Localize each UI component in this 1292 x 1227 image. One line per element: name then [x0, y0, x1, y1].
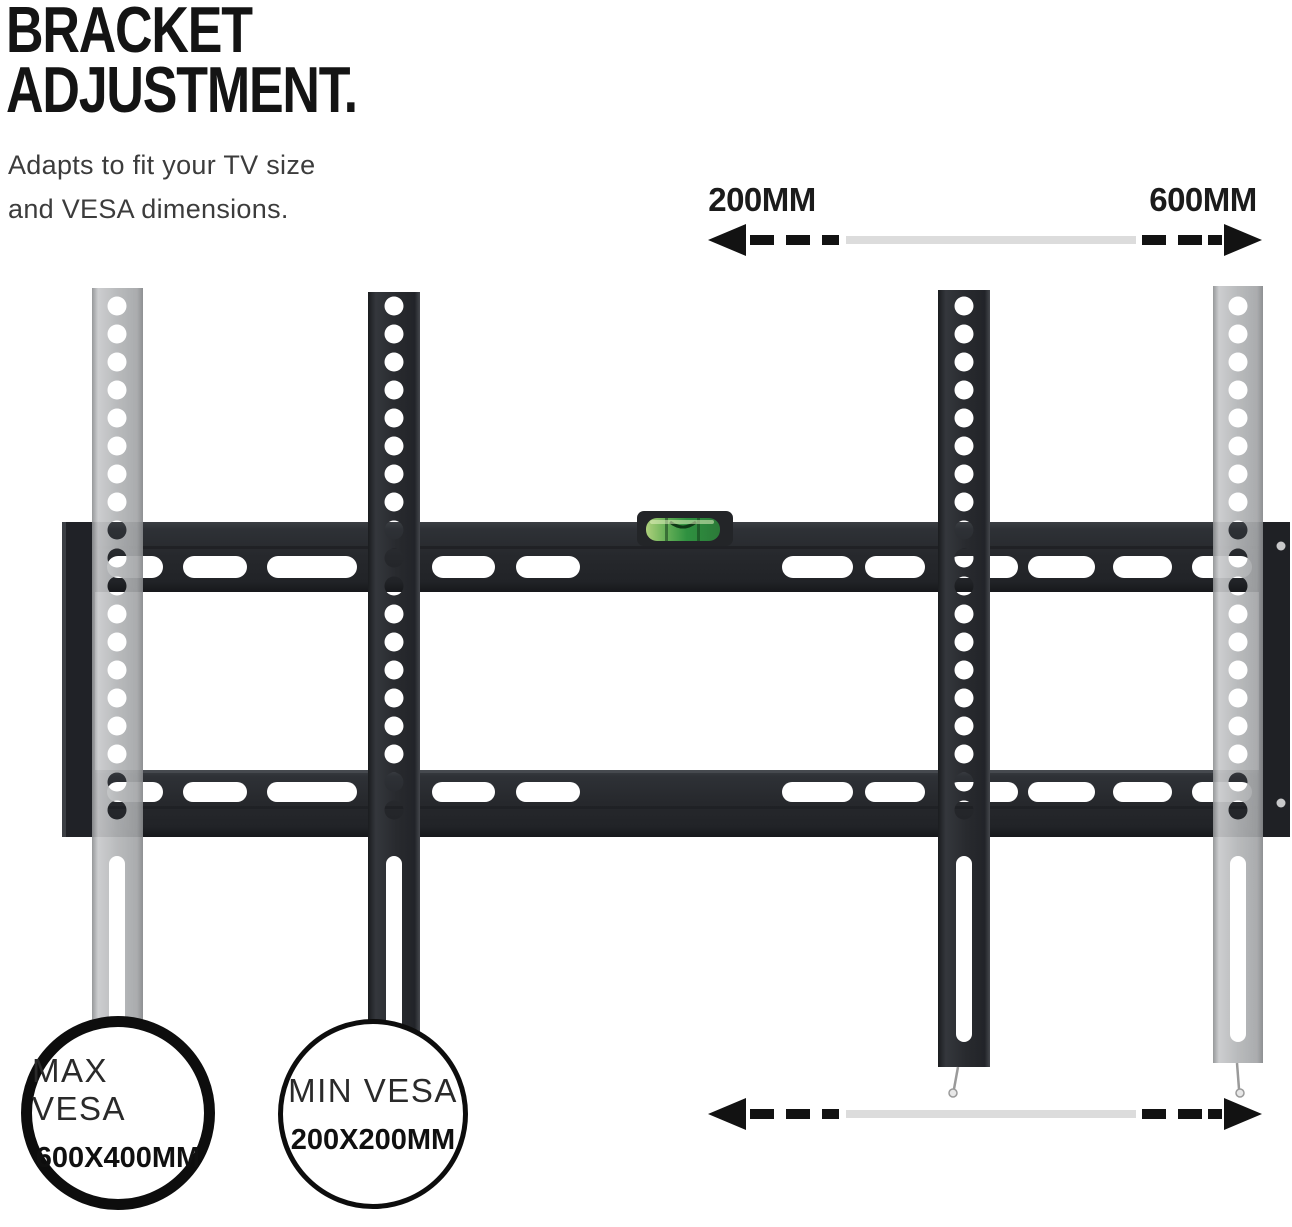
min-vesa-label: MIN VESA: [288, 1072, 458, 1110]
spirit-level: [637, 511, 733, 546]
vesa-arm-black-left: [368, 292, 420, 1065]
max-vesa-badge: MAX VESA 600X400MM: [21, 1016, 215, 1210]
bottom-dimension-arrow-icon: [708, 1098, 1262, 1130]
vesa-arm-gray-left: [92, 288, 143, 1065]
vesa-arm-gray-right: [1213, 286, 1263, 1063]
max-vesa-label: MAX VESA: [32, 1052, 204, 1128]
vesa-arm-black-right: [938, 290, 990, 1067]
max-vesa-value: 600X400MM: [36, 1142, 200, 1175]
pull-cord-black-arm: [949, 1067, 958, 1097]
wall-plate: [62, 511, 1290, 837]
min-vesa-badge: MIN VESA 200X200MM: [278, 1019, 468, 1209]
top-dimension-arrow-icon: [708, 224, 1262, 256]
bottom-rail: [62, 770, 1290, 837]
tv-bracket-illustration: [0, 0, 1292, 1227]
product-infographic: BRACKET ADJUSTMENT. Adapts to fit your T…: [0, 0, 1292, 1227]
min-vesa-value: 200X200MM: [291, 1124, 455, 1157]
left-end-cap: [62, 522, 95, 837]
right-end-cap: [1259, 522, 1290, 837]
pull-cord-gray-arm: [1236, 1063, 1244, 1097]
